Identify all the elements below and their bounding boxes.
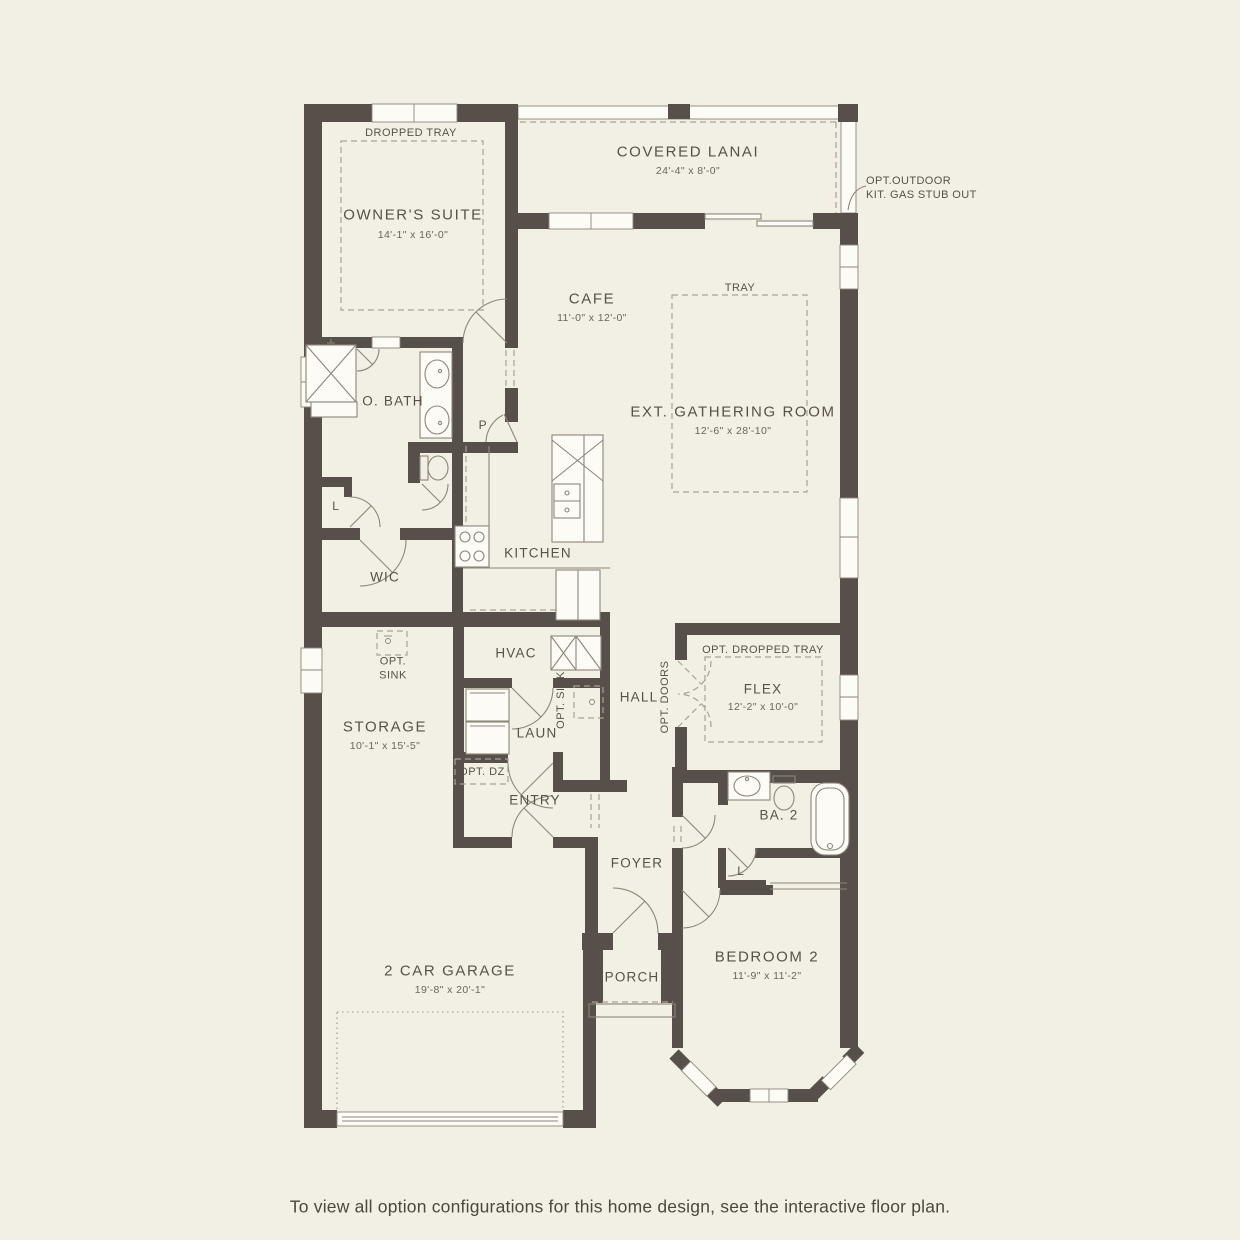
tray-label: TRAY [725, 282, 756, 294]
garage-label: 2 CAR GARAGE [384, 963, 516, 980]
entry-label: ENTRY [509, 793, 561, 808]
bedroom2-closet-doors [770, 883, 847, 889]
opt-doors-label: OPT. DOORS [659, 661, 671, 734]
gathering-room-dims: 12'-6" x 28'-10" [695, 425, 772, 437]
owners-suite-door [463, 299, 507, 343]
bath2-label: BA. 2 [759, 808, 798, 823]
flex-opt-doors [678, 661, 711, 727]
bedroom2-dims: 11'-9" x 11'-2" [732, 970, 801, 982]
opt-sink-storage-label: OPT. SINK [379, 655, 407, 683]
linen1-door [350, 497, 380, 527]
bedroom2-door [682, 890, 720, 928]
gathering-tray-outline [672, 295, 807, 492]
flex-label: FLEX [744, 682, 783, 697]
opt-sink-storage-outline [377, 631, 407, 655]
floor-plan-drawing [0, 0, 1240, 1240]
owners-wc-door [422, 484, 448, 510]
owners-suite-tray-outline [341, 141, 483, 310]
covered-lanai-dims: 24'-4" x 8'-0" [656, 165, 720, 177]
hvac-label: HVAC [495, 646, 536, 661]
shower [306, 339, 357, 417]
kitchen-range [455, 526, 489, 567]
porch-step [589, 1004, 675, 1017]
storage-dims: 10'-1" x 15'-5" [350, 740, 421, 752]
flex-dims: 12'-2" x 10'-0" [728, 701, 799, 713]
entry-cased-opening [591, 794, 599, 828]
flex-tray-outline [705, 657, 822, 742]
linen2-label: L [737, 864, 744, 878]
kitchen-label: KITCHEN [504, 546, 572, 561]
floor-plan: DROPPED TRAY OWNER'S SUITE 14'-1" x 16'-… [0, 0, 1240, 1240]
opt-sink-laundry-outline [574, 686, 603, 718]
bath2-toilet-bowl [774, 786, 794, 810]
garage-door-swing-area [337, 1012, 563, 1112]
shower-door [357, 349, 379, 371]
hvac-unit [551, 636, 601, 670]
cafe-label: CAFE [569, 291, 615, 308]
laundry-door [512, 688, 553, 729]
opt-sink-laundry-label: OPT. SINK [555, 671, 567, 729]
opt-dz-label: OPT. DZ [459, 766, 505, 778]
lanai-sliding-door [705, 214, 813, 226]
cafe-cased-opening [506, 350, 514, 386]
bedroom2-label: BEDROOM 2 [715, 949, 819, 966]
linen1-label: L [332, 499, 339, 513]
foyer-cased-opening [674, 826, 681, 846]
storage-label: STORAGE [343, 719, 427, 736]
owners-suite-dims: 14'-1" x 16'-0" [378, 229, 449, 241]
wic-label: WIC [370, 570, 400, 585]
opt-outdoor-line1: OPT.OUTDOOR [866, 174, 977, 188]
laundry-label: LAUN [517, 726, 558, 741]
washer-dryer [466, 689, 509, 754]
owners-bath-vanity [420, 352, 452, 438]
covered-lanai-label: COVERED LANAI [617, 144, 760, 161]
kitchen-island [552, 435, 603, 542]
gathering-room-label: EXT. GATHERING ROOM [630, 404, 835, 421]
opt-outdoor-callout: OPT.OUTDOOR KIT. GAS STUB OUT [866, 174, 977, 203]
cafe-dims: 11'-0" x 12'-0" [557, 312, 627, 324]
bath2-vestibule-door [682, 815, 715, 848]
opt-outdoor-line2: KIT. GAS STUB OUT [866, 188, 977, 202]
hall-label: HALL [620, 690, 659, 705]
pantry-label: P [479, 418, 488, 432]
owners-bath-label: O. BATH [362, 394, 423, 409]
front-door [613, 888, 658, 933]
garage-dims: 19'-8" x 20'-1" [415, 984, 486, 996]
dropped-tray-label: DROPPED TRAY [365, 127, 457, 139]
owners-suite-label: OWNER'S SUITE [343, 207, 483, 224]
owners-wc-toilet [420, 456, 448, 480]
foyer-label: FOYER [611, 856, 664, 871]
opt-dropped-tray-label: OPT. DROPPED TRAY [702, 644, 824, 656]
page-caption: To view all option configurations for th… [290, 1197, 950, 1218]
porch-label: PORCH [605, 970, 660, 985]
